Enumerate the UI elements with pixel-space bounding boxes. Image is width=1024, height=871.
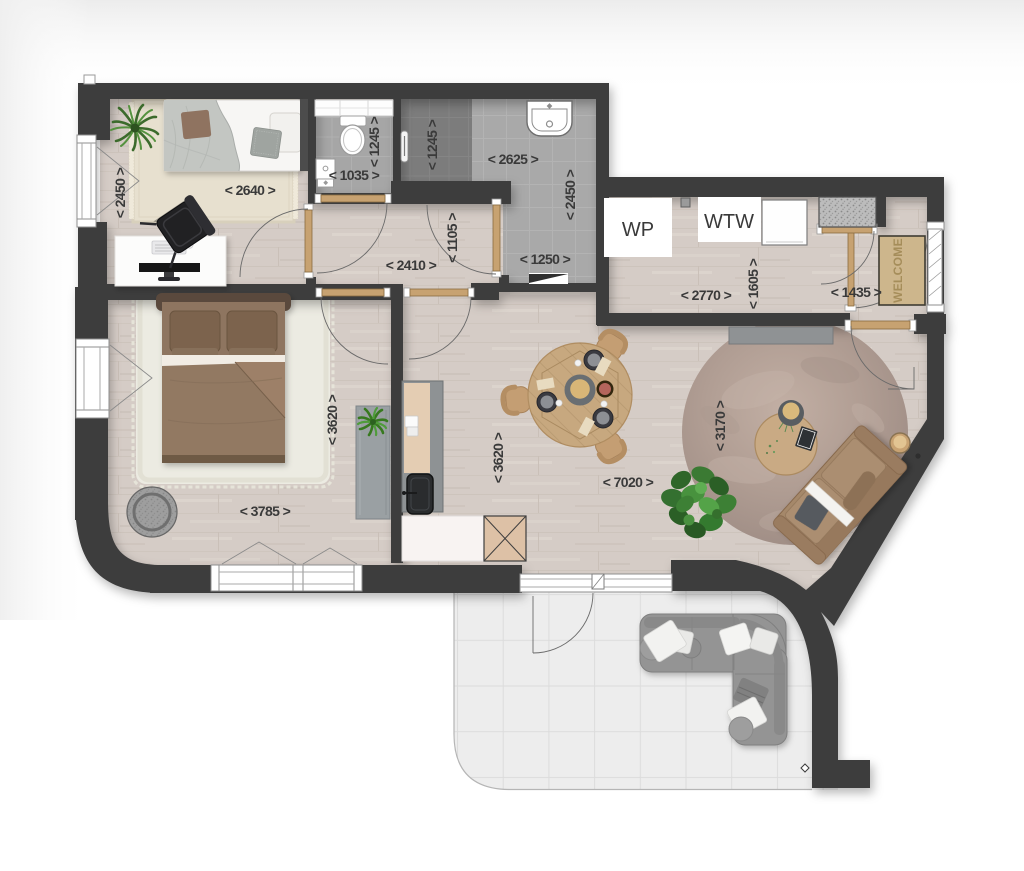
svg-text:< 1245 >: < 1245 > [366, 116, 382, 167]
svg-text:< 1105 >: < 1105 > [444, 213, 460, 263]
svg-text:< 3785 >: < 3785 > [240, 503, 291, 519]
svg-text:< 1435 >: < 1435 > [831, 284, 882, 300]
svg-text:WELCOME: WELCOME [891, 238, 905, 303]
svg-text:< 2410 >: < 2410 > [386, 257, 437, 273]
svg-text:< 2450 >: < 2450 > [562, 169, 578, 220]
svg-text:< 3170 >: < 3170 > [712, 400, 728, 451]
svg-text:WP: WP [622, 219, 654, 241]
svg-text:< 1245 >: < 1245 > [424, 119, 440, 170]
svg-text:< 1035 >: < 1035 > [329, 167, 380, 183]
svg-text:< 1250 >: < 1250 > [520, 251, 571, 267]
svg-text:< 1605 >: < 1605 > [745, 258, 761, 309]
svg-text:< 2770 >: < 2770 > [681, 287, 732, 303]
svg-text:< 2450 >: < 2450 > [112, 167, 128, 218]
svg-text:< 7020 >: < 7020 > [603, 474, 654, 490]
svg-text:< 2640 >: < 2640 > [225, 182, 276, 198]
svg-text:< 2625 >: < 2625 > [488, 151, 539, 167]
svg-text:< 3620 >: < 3620 > [324, 394, 340, 445]
svg-text:< 3620 >: < 3620 > [490, 432, 506, 483]
svg-text:WTW: WTW [704, 211, 754, 233]
